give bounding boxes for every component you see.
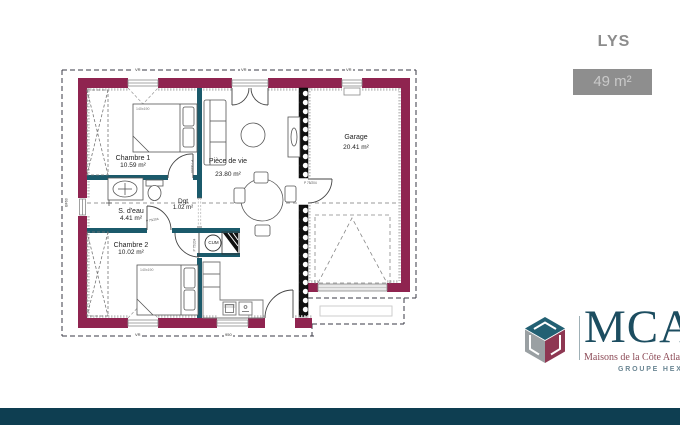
room-area: 23.80 m² [188,171,268,178]
shutter-label-top3: VR [345,67,353,72]
shutter-label-bottom: VR [134,332,142,337]
floorplan: Chambre 1 10.59 m² S. d'eau 4.41 m² Dgt … [58,62,422,346]
room-area: 10.02 m² [91,249,171,256]
page-title: LYS [574,33,654,51]
area-badge: 49 m² [573,69,652,95]
room-label-dgt: Dgt 1.02 m² [163,198,203,211]
room-area: 1.02 m² [163,205,203,211]
screenshot-page: LYS 49 m² [0,0,680,425]
room-name: Chambre 1 [93,155,173,162]
logo-group-name: GROUPE HEXAOM [618,366,680,373]
footer-bar [0,408,680,425]
bathroom-fixtures [106,178,163,206]
room-area: 10.59 m² [93,162,173,169]
bed2-size-label: 140x190 [140,268,153,272]
door-label-chambre2: P 75/204 [192,239,196,252]
window-left-label: BF60 [65,197,70,207]
shutter-label-top1: VR [134,67,142,72]
room-name: S. d'eau [91,208,171,215]
door-label-garage: P 75/204 [304,181,317,185]
room-name: Dgt [163,198,203,205]
dimension-label: 950 [224,332,233,337]
mca-cube-icon [518,311,572,369]
room-name: Chambre 2 [91,242,171,249]
garage-door [315,215,392,316]
floorplan-drawing [58,62,422,346]
water-heater-label: CUM [205,240,222,245]
room-label-chambre1: Chambre 1 10.59 m² [93,155,173,169]
logo-tagline: Maisons de la Côte Atlantique [584,352,680,363]
room-label-garage: Garage 20.41 m² [316,134,396,151]
room-area: 20.41 m² [316,144,396,151]
room-name: Garage [316,134,396,141]
room-name: Pièce de vie [188,158,268,165]
door-label-chambre1: P 75/204 [190,160,194,173]
bed1-size-label: 140x190 [136,107,149,111]
logo-text: MCA [584,300,680,354]
room-label-chambre2: Chambre 2 10.02 m² [91,242,171,256]
shutter-label-top2: VR [240,67,248,72]
room-label-piece-de-vie: Pièce de vie 23.80 m² [188,158,268,178]
kitchen [203,262,263,318]
logo-divider [579,316,580,360]
